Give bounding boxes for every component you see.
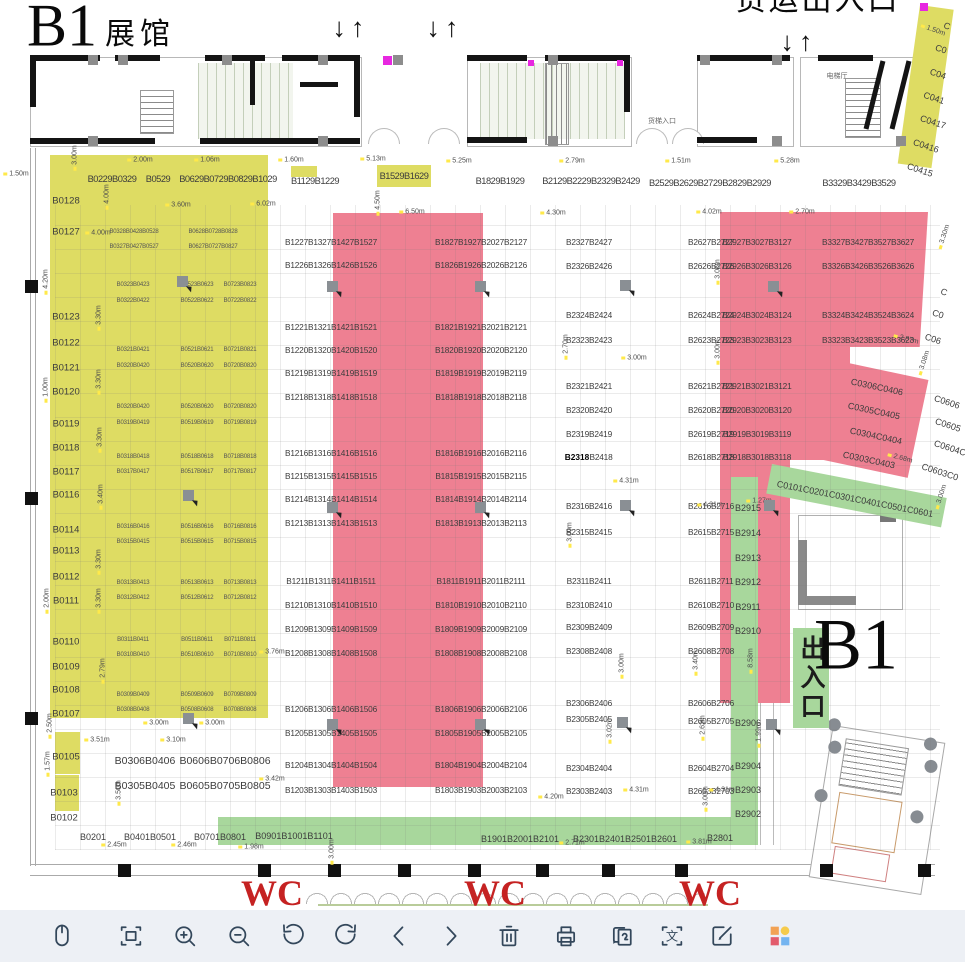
booth-label: B0515B0615: [181, 539, 214, 545]
booth-label: B1815B1915B2015B2115: [435, 471, 526, 481]
zoom-out-icon[interactable]: [225, 922, 253, 950]
booth-label: B0711B0811: [224, 637, 256, 643]
booth-label: B0712B0812: [224, 595, 257, 601]
magenta-marker: [920, 3, 928, 11]
dimension-label: 1.06m: [194, 157, 219, 164]
fit-view-icon[interactable]: [117, 922, 145, 950]
staircase: [140, 90, 174, 134]
booth-label: B0111: [53, 596, 79, 607]
booth-label: B0322B0422: [117, 298, 150, 304]
selection-handle[interactable]: [327, 719, 338, 730]
rotate-left-icon[interactable]: [279, 922, 307, 950]
booth-label: B0628B0728B0828: [188, 229, 237, 235]
booth-label: B1827B1927B2027B2127: [435, 237, 527, 247]
dimension-label: 4.20m: [43, 269, 50, 294]
booth-label: B2615B2715: [688, 527, 734, 537]
booth-label: C0604C: [933, 438, 965, 458]
booth-label: B2927B3027B3127: [723, 237, 792, 247]
booth-label: B0318B0418: [117, 454, 150, 460]
dimension-label: 3.08m: [917, 350, 932, 376]
booth-label: B0401B0501: [124, 832, 176, 842]
booth-label: B0629B0729B0829B1029: [179, 174, 277, 184]
direction-arrows: ↓↑: [781, 27, 818, 58]
booth-label: B1215B1315B1415B1515: [285, 471, 377, 481]
print-icon[interactable]: [552, 922, 580, 950]
booth-label: B2924B3024B3124: [723, 310, 792, 320]
copy-page-icon[interactable]: [608, 922, 636, 950]
booth-label: B0127: [52, 227, 79, 238]
booth-label: B2529B2629B2729B2829B2929: [649, 178, 771, 188]
dimension-label: 4.02m: [696, 209, 721, 216]
column-marker: [328, 864, 341, 877]
booth-label: B0716B0816: [224, 524, 257, 530]
dimension-label: 2.79m: [100, 658, 107, 683]
booth-label: B2611B2711: [689, 576, 734, 586]
edit-icon[interactable]: [708, 922, 736, 950]
dimension-label: 3.10m: [160, 737, 185, 744]
booth-label: B1804B1904B2004B2104: [435, 760, 527, 770]
column-marker: [25, 492, 38, 505]
booth-label: B2326B2426: [566, 261, 612, 271]
booth-label: B0605B0705B0805: [179, 780, 270, 792]
dimension-label: 1.50m: [3, 171, 28, 178]
booth-label: B0516B0616: [181, 524, 214, 530]
dimension-label: 4.00m: [104, 184, 111, 209]
booth-label: B2910: [735, 626, 761, 636]
svg-text:文: 文: [666, 928, 678, 943]
booth-label: B1803B1903B2003B2103: [435, 785, 527, 795]
booth-label: B2327B2427: [566, 237, 612, 247]
booth-label: B1216B1316B1416B1516: [285, 448, 377, 458]
booth-label: B0517B0617: [181, 469, 214, 475]
booth-label: B2919B3019B3119: [723, 429, 791, 439]
dimension-label: 6.02m: [250, 201, 275, 208]
magenta-marker: [617, 60, 623, 66]
booth-label: B2319B2419: [566, 429, 612, 439]
booth-label: B1809B1909B2009B2109: [435, 624, 527, 634]
column-marker: [25, 712, 38, 725]
hall-code-big: B1: [814, 604, 898, 687]
dimension-label: 3.30m: [937, 224, 952, 250]
booth-label: B0529: [146, 174, 170, 184]
booth-label: B1204B1304B1404B1504: [285, 760, 377, 770]
dimension-label: 3.00m: [703, 786, 710, 811]
booth-label: B0320B0420: [117, 404, 150, 410]
booth-label: C0606: [933, 393, 961, 411]
booth-label: B0709B0809: [224, 692, 257, 698]
booth-label: B2920B3020B3120: [723, 405, 792, 415]
booth-label: B3326B3426B3526B3626: [822, 261, 914, 271]
booth-label: B0114: [53, 525, 80, 536]
booth-label: B0713B0813: [224, 580, 257, 586]
booth-label: B0315B0415: [117, 539, 150, 545]
booth-label: B0719B0819: [224, 420, 257, 426]
direction-arrows: ↓↑: [333, 13, 370, 44]
next-icon[interactable]: [437, 922, 465, 950]
booth-label: B0317B0417: [117, 469, 150, 475]
mouse-tool-icon[interactable]: [48, 922, 76, 950]
booth-label: B2912: [735, 577, 761, 587]
column-marker: [772, 136, 782, 146]
dimension-label: 3.30m: [96, 369, 103, 394]
yellow-zone: [50, 155, 268, 718]
booth-label: B2303B2403: [566, 786, 612, 796]
column-marker: [88, 136, 98, 146]
booth-label: B2321B2421: [566, 381, 612, 391]
booth-label: B2324B2424: [566, 310, 612, 320]
booth-label: B2903: [735, 785, 761, 795]
booth-label: B1227B1327B1427B1527: [285, 237, 377, 247]
booth-label: B2610B2710: [688, 600, 734, 610]
dimension-label: 3.81m: [686, 839, 711, 846]
dimension-label: 3.40m: [693, 650, 700, 675]
booth-label: B0510B0610: [181, 652, 214, 658]
zoom-in-icon[interactable]: [171, 922, 199, 950]
dimension-label: 3.00m: [715, 339, 722, 364]
booth-label: B0512B0612: [181, 595, 214, 601]
column-marker: [318, 136, 328, 146]
dimension-label: 4.31m: [709, 787, 734, 794]
booth-label: B1813B1913B2013B2113: [435, 518, 526, 528]
wc-label: WC: [464, 872, 526, 914]
selection-handle[interactable]: [475, 281, 486, 292]
booth-label: B2902: [735, 809, 761, 819]
booth-label: B2606B2706: [688, 698, 734, 708]
dimension-label: 3.40m: [98, 484, 105, 509]
selection-handle[interactable]: [620, 500, 631, 511]
column-marker: [222, 55, 232, 65]
booth-label: B0723B0823: [224, 282, 257, 288]
dimension-label: 3.50m: [116, 780, 123, 805]
booth-label: B0112: [53, 572, 80, 583]
booth-label: B0310B0410: [117, 652, 150, 658]
magenta-marker: [528, 60, 534, 66]
selection-handle[interactable]: [327, 502, 338, 513]
wc-label: WC: [679, 872, 741, 914]
dimension-label: 2.45m: [101, 842, 126, 849]
dimension-label: 3.00m: [329, 839, 336, 864]
booth-label: B0718B0818: [224, 454, 257, 460]
booth-label: B0327B0427B0527: [109, 244, 158, 250]
booth-label: B0722B0822: [224, 298, 257, 304]
dimension-label: 1.51m: [665, 158, 690, 165]
dimension-label: 3.30m: [96, 588, 103, 613]
booth-label: B2306B2406: [566, 698, 612, 708]
booth-label: B2308B2408: [566, 646, 612, 656]
dimension-label: 4.31m: [623, 787, 648, 794]
booth-label: B1221B1321B1421B1521: [285, 322, 377, 332]
text-recognition-icon[interactable]: 文: [658, 922, 686, 950]
booth-label: B0229B0329: [88, 174, 137, 184]
booth-label: C0605: [934, 416, 962, 434]
booth-label: B1829B1929: [476, 176, 525, 186]
freight-entrance-label: 货运出入口: [736, 0, 901, 19]
booth-label: B0118: [53, 443, 80, 454]
booth-label: B0708B0808: [224, 707, 257, 713]
booth-label: B2921B3021B3121: [723, 381, 792, 391]
booth-label: B1808B1908B2008B2108: [435, 648, 527, 658]
booth-label: B0720B0820: [224, 363, 257, 369]
dimension-label: 4.31m: [613, 478, 638, 485]
building-block: [697, 57, 794, 147]
booth-label: B0721B0821: [224, 347, 257, 353]
dimension-label: 1.00m: [43, 377, 50, 402]
booth-label: B0513B0613: [181, 580, 214, 586]
booth-label: B2316B2416: [566, 501, 612, 511]
selection-handle[interactable]: [766, 719, 777, 730]
booth-label: B0105: [52, 752, 79, 763]
booth-label: B0107: [52, 709, 79, 720]
booth-label: B0320B0420: [117, 363, 150, 369]
booth-label: B0312B0412: [117, 595, 150, 601]
booth-label: B2923B3023B3123: [723, 335, 792, 345]
booth-label: B2310B2410: [566, 600, 612, 610]
booth-label: B2609B2709: [688, 622, 734, 632]
escalator: [545, 63, 569, 145]
booth-label: B1203B1303B1403B1503: [285, 785, 377, 795]
dimension-label: 3.00m: [619, 653, 626, 678]
dimension-label: 5.13m: [360, 156, 385, 163]
booth-label: B0627B0727B0827: [188, 244, 237, 250]
column-marker: [118, 864, 131, 877]
booth-label: B1226B1326B1426B1526: [285, 260, 377, 270]
delete-icon[interactable]: [495, 922, 523, 950]
booth-label: B0117: [53, 467, 80, 478]
dimension-label: 3.02m: [607, 718, 614, 743]
booth-label: B0519B0619: [181, 420, 214, 426]
dimension-label: 2.46m: [171, 842, 196, 849]
dimension-label: 4.00m: [85, 230, 110, 237]
dimension-label: 4.31m: [697, 502, 722, 509]
hall-title-word: 展馆: [105, 9, 175, 53]
booth-label: B1210B1310B1410B1510: [285, 600, 377, 610]
selection-handle[interactable]: [177, 276, 188, 287]
booth-label: B1209B1309B1409B1509: [285, 624, 377, 634]
booth-label: B0309B0409: [117, 692, 150, 698]
booth-label: B2904: [735, 761, 761, 771]
dimension-label: 2.79m: [559, 158, 584, 165]
dimension-label: 3.42m: [259, 776, 284, 783]
dimension-label: 4.30m: [540, 210, 565, 217]
booth-label: B1820B1920B2020B2120: [435, 345, 527, 355]
booth-label: B0316B0416: [117, 524, 150, 530]
selection-handle[interactable]: [620, 280, 631, 291]
booth-label: B0319B0419: [117, 420, 150, 426]
dimension-label: 3.60m: [165, 202, 190, 209]
booth-label: B0201: [80, 832, 106, 842]
booth-label: B2320B2420: [566, 405, 612, 415]
booth-label: B2605B2705: [688, 716, 734, 726]
booth-label: B0113: [53, 546, 80, 557]
booth-label-highlighted: B2318: [565, 452, 589, 462]
booth-label: B3329B3429B3529: [822, 178, 895, 188]
booth-label: B1810B1910B2010B2110: [435, 600, 526, 610]
booth-label: B0509B0609: [181, 692, 214, 698]
selection-handle[interactable]: [768, 281, 779, 292]
booth-label: B2301B2401B2501B2601: [573, 834, 677, 844]
booth-label: B2418: [590, 452, 613, 462]
booth-label: B0511B0611: [181, 637, 213, 643]
selection-handle[interactable]: [327, 281, 338, 292]
dimension-label: 2.50m: [47, 713, 54, 738]
booth-label: B1206B1306B1406B1506: [285, 704, 377, 714]
dimension-label: 3.05m: [715, 259, 722, 284]
booth-label: B1826B1926B2026B2126: [435, 260, 527, 270]
dimension-label: 5.25m: [446, 158, 471, 165]
booth-label: B0122: [52, 338, 79, 349]
column-marker: [318, 55, 328, 65]
column-marker: [118, 55, 128, 65]
booth-label: B0128: [52, 196, 79, 207]
dimension-label: 2.62m: [700, 715, 707, 740]
dimension-label: 3.00m: [621, 355, 646, 362]
dimension-label: 3.30m: [97, 427, 104, 452]
column-marker: [820, 864, 833, 877]
selection-handle[interactable]: [764, 500, 775, 511]
booth-label: B0305B0405: [115, 780, 176, 792]
dimension-label: 1.99m: [756, 722, 763, 747]
dimension-label: 2.70m: [789, 209, 814, 216]
column-marker: [896, 136, 906, 146]
booth-label: B1816B1916B2016B2116: [435, 448, 526, 458]
booth-label: B0116: [53, 490, 80, 501]
column-marker: [398, 864, 411, 877]
booth-label: B0522B0622: [181, 298, 214, 304]
booth-label: B0313B0413: [117, 580, 150, 586]
booth-label: B2911: [735, 602, 760, 612]
booth-label: C: [939, 286, 948, 298]
dimension-label: 1.98m: [238, 844, 263, 851]
selection-handle[interactable]: [617, 717, 628, 728]
booth-label: B0328B0428B0528: [109, 229, 158, 235]
direction-arrows: ↓↑: [427, 13, 464, 44]
booth-label: B1529B1629: [380, 171, 429, 181]
booth-label: B0311B0411: [117, 637, 149, 643]
booth-label: C06: [924, 332, 943, 347]
booth-label: B2604B2704: [688, 763, 734, 773]
booth-label: B0323B0423: [117, 282, 150, 288]
booth-label: B0521B0621: [181, 347, 214, 353]
booth-label: B1818B1918B2018B2118: [435, 392, 526, 402]
booth-label: B1220B1320B1420B1520: [285, 345, 377, 355]
dimension-label: 3.00m: [72, 145, 79, 170]
dimension-label: 5.28m: [774, 158, 799, 165]
booth-label: B0110: [53, 637, 80, 648]
column-marker: [918, 864, 931, 877]
dimension-label: 3.51m: [84, 737, 109, 744]
booth-label: B3327B3427B3527B3627: [822, 237, 914, 247]
dimension-label: 3.00m: [143, 720, 168, 727]
booth-label: B0715B0815: [224, 539, 257, 545]
booth-label: B2129B2229B2329B2429: [542, 176, 640, 186]
dimension-label: 2.00m: [127, 157, 152, 164]
booth-label: B2311B2411: [567, 576, 612, 586]
booth-label: B2309B2409: [566, 622, 612, 632]
booth-label: B0717B0817: [224, 469, 257, 475]
booth-label: C0603C0: [920, 461, 959, 482]
booth-label: B0710B0810: [224, 652, 257, 658]
rotate-right-icon[interactable]: [332, 922, 360, 950]
column-marker: [602, 864, 615, 877]
booth-label: B1129B1229: [291, 176, 339, 186]
booth-label: B0606B0706B0806: [179, 755, 270, 767]
column-marker: [25, 280, 38, 293]
booth-label: B0102: [50, 813, 77, 824]
selection-handle[interactable]: [183, 713, 194, 724]
booth-label: B0518B0618: [181, 454, 214, 460]
booth-label: B0123: [52, 312, 79, 323]
color-palette-icon[interactable]: [766, 922, 794, 950]
booth-label: B1208B1308B1408B1508: [285, 648, 377, 658]
column-marker: [536, 864, 549, 877]
booth-label: B0119: [53, 419, 80, 430]
magenta-marker: [383, 56, 392, 65]
floor-plan-canvas[interactable]: 出入口 B1展馆货运出入口↓↑↓↑↓↑B1WCWCWC电梯厅货梯入口B0128B…: [0, 0, 965, 962]
dimension-label: 2.00m: [44, 588, 51, 613]
booth-label: B3324B3424B3524B3624: [822, 310, 914, 320]
booth-label: B0520B0620: [181, 363, 214, 369]
booth-label: B1901B2001B2101: [481, 834, 559, 844]
dimension-label: 3.30m: [96, 305, 103, 330]
selection-handle[interactable]: [183, 490, 194, 501]
dimension-label: 3.76m: [259, 649, 284, 656]
booth-label: B1213B1313B1413B1513: [285, 518, 377, 528]
viewer-toolbar: 文: [0, 910, 965, 962]
dimension-label: 3.00m: [199, 720, 224, 727]
dimension-label: 8.58m: [748, 648, 755, 673]
dimension-label: 2.70m: [563, 334, 570, 359]
booth-label: B2926B3026B3126: [723, 261, 792, 271]
restroom-area: [198, 63, 293, 139]
dimension-label: 4.50m: [375, 190, 382, 215]
booth-label: B1211B1311B1411B1511: [286, 576, 376, 586]
dimension-label: 3.30m: [96, 549, 103, 574]
booth-label: B1806B1906B2006B2106: [435, 704, 527, 714]
wc-label: WC: [241, 872, 303, 914]
elevator-label: 电梯厅: [827, 71, 848, 81]
booth-label: B1811B1911B2011B2111: [437, 576, 526, 586]
dimension-label: 1.57m: [45, 751, 52, 776]
booth-label: B1821B1921B2021B2121: [435, 322, 527, 332]
dimension-label: 6.50m: [399, 209, 424, 216]
elevator-label: 货梯入口: [648, 116, 676, 126]
booth-label: C0: [931, 307, 945, 320]
booth-label: B0701B0801: [194, 832, 246, 842]
booth-label: B1218B1318B1418B1518: [285, 392, 377, 402]
booth-label: B2323B2423: [566, 335, 612, 345]
column-marker: [700, 55, 710, 65]
booth-label: B1219B1319B1419B1519: [285, 368, 377, 378]
booth-label: B1819B1919B2019B2119: [435, 368, 526, 378]
booth-label: B0720B0820: [224, 404, 257, 410]
dimension-label: 1.60m: [278, 157, 303, 164]
column-marker: [548, 55, 558, 65]
column-marker: [548, 136, 558, 146]
hall-title: B1: [27, 0, 97, 61]
booth-label: B0520B0620: [181, 404, 214, 410]
dimension-label: 3.00m: [567, 522, 574, 547]
booth-label: B2305B2405: [566, 714, 612, 724]
booth-label: B2915: [735, 503, 761, 513]
booth-label: B2913: [735, 553, 761, 563]
selection-handle[interactable]: [475, 502, 486, 513]
previous-icon[interactable]: [385, 922, 413, 950]
selection-handle[interactable]: [475, 719, 486, 730]
booth-label: B0121: [52, 363, 79, 374]
dimension-label: 4.20m: [538, 794, 563, 801]
booth-label: B0109: [52, 662, 79, 673]
booth-label: B0321B0421: [117, 347, 150, 353]
